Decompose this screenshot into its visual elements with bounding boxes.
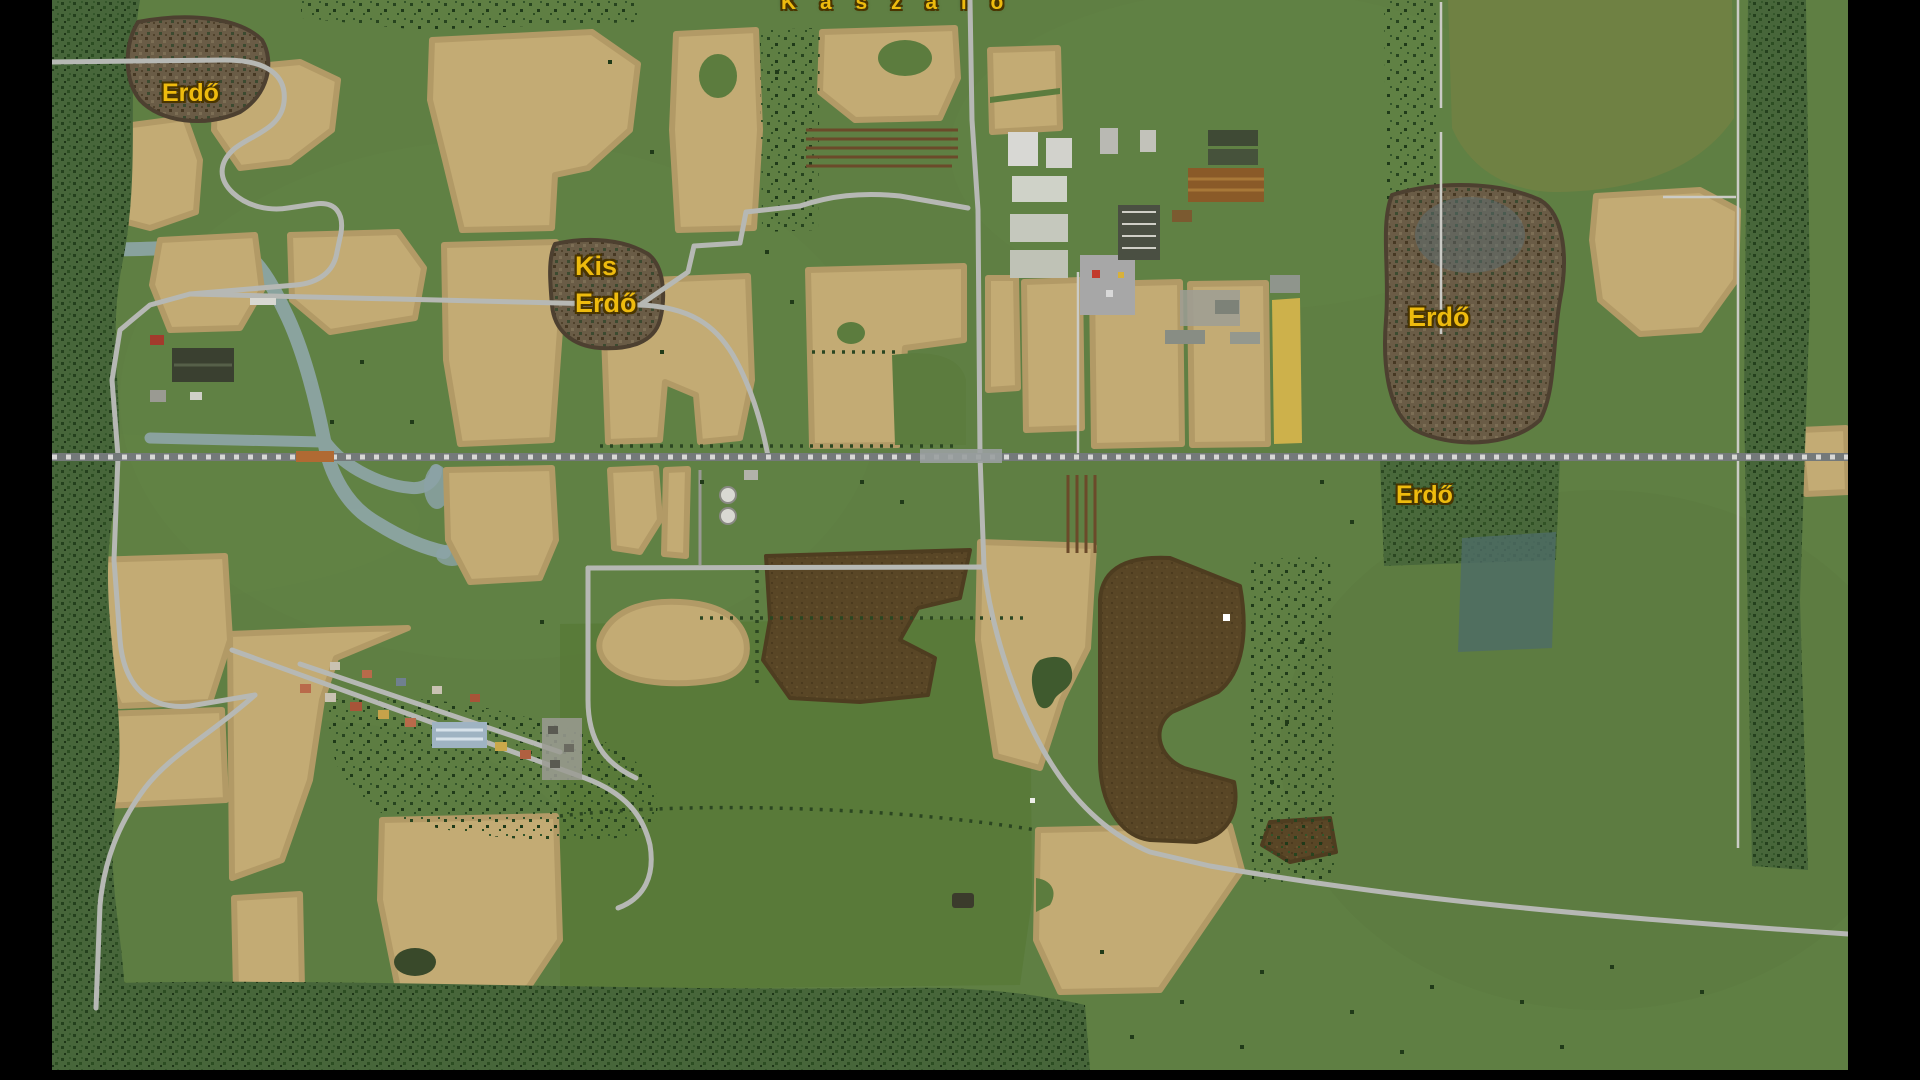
gold-field bbox=[1272, 298, 1302, 444]
map-label-kis-erdo-line2: Erdő bbox=[575, 285, 637, 322]
map-label-erdo-se-text: Erdő bbox=[1396, 481, 1453, 509]
map-label-erdo-southeast: Erdő bbox=[1396, 481, 1453, 510]
forest-blue-tint bbox=[1415, 197, 1525, 273]
map-label-kis-erdo: Kis Erdő bbox=[575, 248, 637, 322]
map-label-kaszalo-text: K a s z a l o bbox=[781, 0, 1012, 14]
map-svg bbox=[0, 0, 1920, 1080]
railway-crossing bbox=[296, 451, 334, 462]
map-label-kis-erdo-line1: Kis bbox=[575, 248, 637, 285]
map-label-kaszalo: K a s z a l o bbox=[781, 0, 1012, 15]
teal-water-area bbox=[1458, 532, 1556, 652]
map-viewport[interactable]: K a s z a l o Erdő Kis Erdő Erdő Erdő bbox=[0, 0, 1920, 1080]
map-label-erdo-e-text: Erdő bbox=[1408, 302, 1470, 332]
map-label-erdo-nw-text: Erdő bbox=[162, 79, 219, 107]
railway-platform bbox=[920, 449, 1002, 463]
game-screen: K a s z a l o Erdő Kis Erdő Erdő Erdő bbox=[0, 0, 1920, 1080]
map-label-erdo-northwest: Erdő bbox=[162, 79, 219, 108]
map-label-erdo-east: Erdő bbox=[1408, 302, 1470, 333]
